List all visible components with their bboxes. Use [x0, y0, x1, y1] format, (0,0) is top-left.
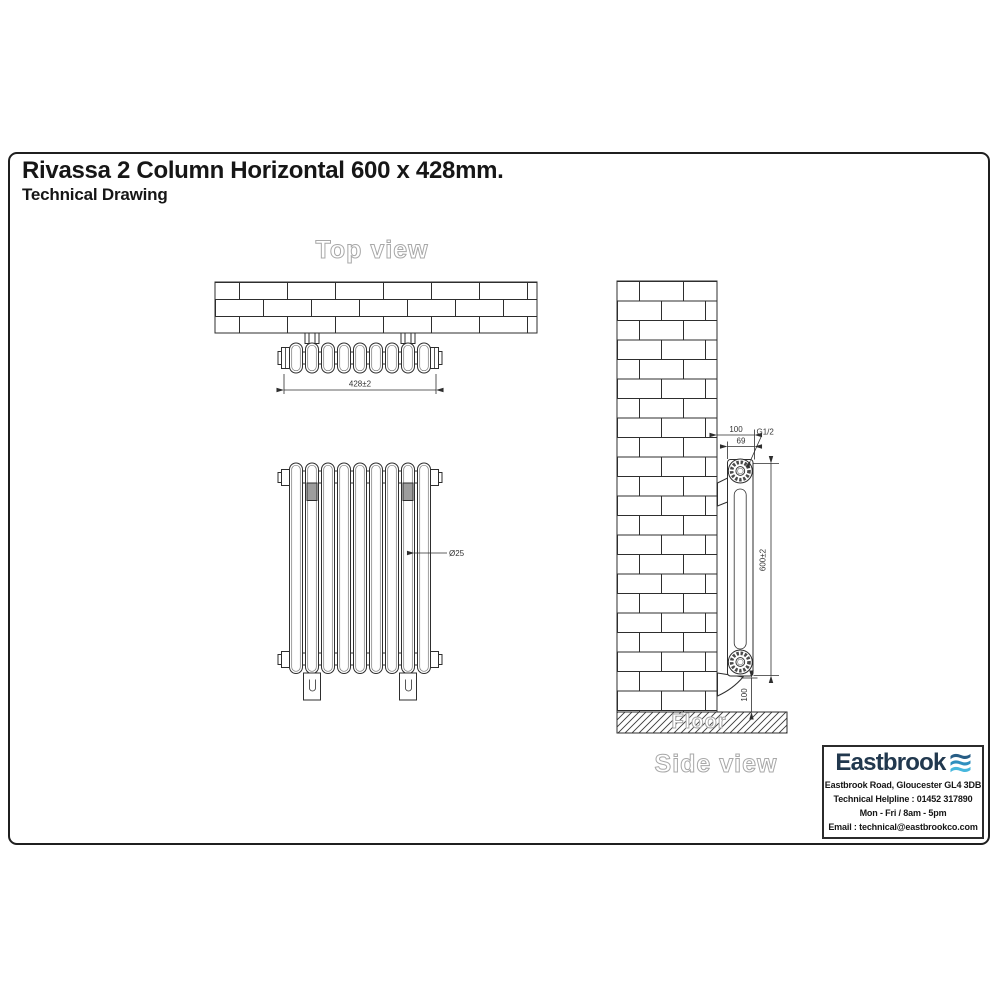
radiator-tube — [290, 463, 303, 674]
wall-bracket-hook-right — [403, 483, 413, 501]
front-view-end-plug-top-left — [278, 470, 290, 486]
technical-drawing-canvas: Top view — [0, 0, 1000, 1000]
height-dim-label: 600±2 — [759, 548, 768, 571]
side-view-label: Side view — [655, 750, 778, 778]
side-bottom-connection — [728, 650, 752, 674]
dimension-floor-clearance-100: 100 — [740, 678, 758, 712]
technical-drawing-page: Rivassa 2 Column Horizontal 600 x 428mm.… — [0, 0, 1000, 1000]
side-top-connection — [728, 459, 752, 483]
eastbrook-logo-text: Eastbrook — [835, 751, 945, 775]
radiator-tube — [370, 463, 383, 674]
dimension-center-69: 69 — [728, 437, 755, 447]
side-view-drawing: Floor 100 69 G1/2 60 — [617, 281, 787, 778]
radiator-column-top — [418, 343, 431, 373]
radiator-column-top — [354, 343, 367, 373]
depth-dim-label: 100 — [729, 425, 743, 434]
radiator-tube — [386, 463, 399, 674]
width-dim-label: 428±2 — [349, 380, 372, 389]
side-wall-bracket-top — [718, 478, 728, 506]
eastbrook-wave-icon — [950, 753, 971, 773]
top-view-end-fitting-right — [431, 348, 443, 369]
radiator-tube — [338, 463, 351, 674]
radiator-column-top — [402, 343, 415, 373]
radiator-tube — [354, 463, 367, 674]
top-view-end-fitting-left — [278, 348, 290, 369]
front-view-drawing: Ø25 — [278, 463, 465, 700]
dimension-width-428: 428±2 — [284, 374, 436, 394]
logo-hours: Mon - Fri / 8am - 5pm — [860, 806, 947, 820]
floor-clearance-dim-label: 100 — [740, 688, 749, 702]
logo-helpline: Technical Helpline : 01452 317890 — [834, 792, 973, 806]
radiator-column-top — [290, 343, 303, 373]
floor-foot-right — [400, 673, 417, 700]
top-view-drawing: Top view — [215, 236, 537, 394]
radiator-column-top — [306, 343, 319, 373]
front-view-end-plug-bottom-right — [431, 652, 443, 668]
top-view-bracket-right — [401, 333, 415, 344]
front-view-end-plug-bottom-left — [278, 652, 290, 668]
floor-label: Floor — [672, 711, 727, 733]
wall-bracket-hook-left — [307, 483, 317, 501]
logo-address: Eastbrook Road, Gloucester GL4 3DB — [825, 778, 981, 792]
top-view-bracket-left — [305, 333, 319, 344]
eastbrook-info-box: Eastbrook Eastbrook Road, Gloucester GL4… — [822, 745, 984, 839]
radiator-column-top — [322, 343, 335, 373]
top-view-label: Top view — [315, 236, 428, 264]
radiator-column-top — [370, 343, 383, 373]
connection-dim-label: G1/2 — [757, 428, 775, 437]
radiator-tube — [322, 463, 335, 674]
front-view-end-plug-top-right — [431, 470, 443, 486]
radiator-tube — [418, 463, 431, 674]
logo-email: Email : technical@eastbrookco.com — [828, 820, 977, 834]
dimension-connection-thread: G1/2 — [751, 428, 775, 461]
eastbrook-logo: Eastbrook — [835, 751, 970, 775]
floor-foot-left — [304, 673, 321, 700]
radiator-column-top — [338, 343, 351, 373]
side-radiator-column — [734, 489, 746, 649]
top-view-wall — [215, 282, 537, 333]
side-view-wall — [617, 281, 717, 712]
radiator-column-top — [386, 343, 399, 373]
center-dim-label: 69 — [737, 437, 746, 446]
dimension-height-600: 600±2 — [754, 464, 780, 676]
tube-dim-label: Ø25 — [449, 549, 465, 558]
